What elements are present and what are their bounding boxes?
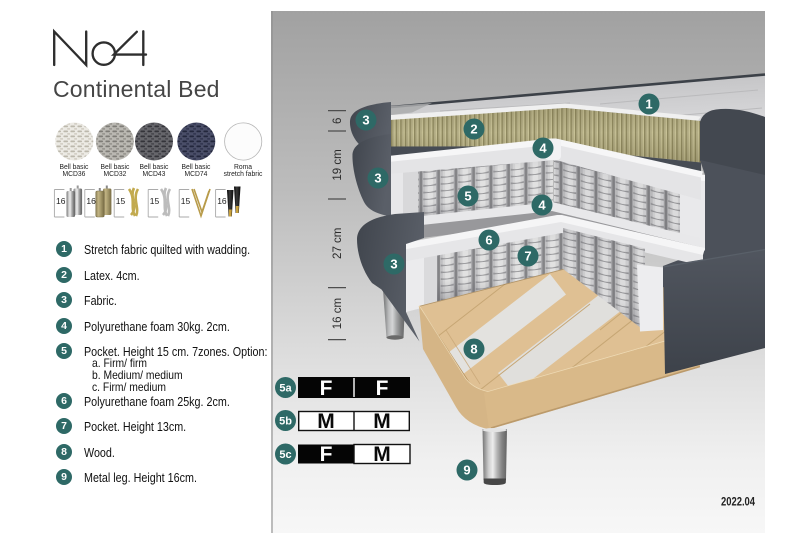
svg-text:3: 3: [390, 257, 397, 272]
svg-text:F: F: [320, 443, 333, 466]
svg-text:2022.04: 2022.04: [721, 496, 755, 509]
svg-text:1: 1: [645, 97, 652, 112]
svg-text:7: 7: [524, 249, 531, 264]
svg-text:27 cm: 27 cm: [332, 228, 344, 259]
svg-text:15: 15: [150, 196, 160, 206]
svg-text:15: 15: [116, 196, 126, 206]
svg-text:16 cm: 16 cm: [332, 298, 344, 329]
svg-text:9: 9: [463, 463, 470, 478]
svg-text:5c: 5c: [279, 449, 291, 461]
svg-text:16: 16: [217, 196, 227, 206]
svg-text:4: 4: [538, 198, 546, 213]
svg-text:6: 6: [332, 118, 344, 124]
svg-text:M: M: [317, 410, 335, 433]
svg-text:19 cm: 19 cm: [332, 149, 344, 180]
svg-text:8: 8: [470, 342, 477, 357]
svg-text:M: M: [373, 443, 391, 466]
svg-text:5: 5: [464, 189, 471, 204]
svg-text:5b: 5b: [279, 416, 292, 428]
svg-text:F: F: [376, 377, 389, 400]
svg-text:3: 3: [374, 171, 381, 186]
svg-text:5a: 5a: [279, 383, 292, 395]
svg-text:6: 6: [485, 233, 492, 248]
svg-text:4: 4: [539, 141, 547, 156]
svg-text:15: 15: [181, 196, 191, 206]
svg-text:3: 3: [362, 113, 369, 128]
svg-text:16: 16: [56, 196, 66, 206]
svg-text:16: 16: [86, 196, 96, 206]
svg-text:F: F: [320, 377, 333, 400]
svg-text:2: 2: [470, 122, 477, 137]
svg-text:M: M: [373, 410, 391, 433]
